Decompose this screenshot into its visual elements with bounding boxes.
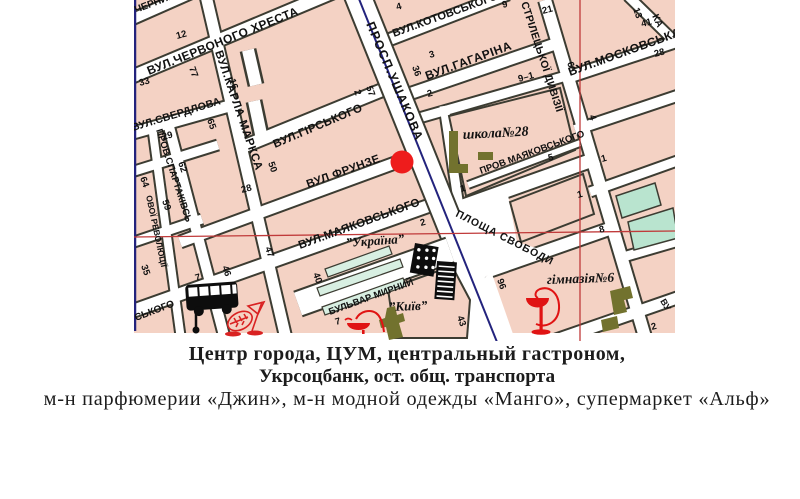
svg-text:гімназія№6: гімназія№6 — [547, 270, 615, 287]
svg-text:”Київ”: ”Київ” — [389, 298, 428, 314]
